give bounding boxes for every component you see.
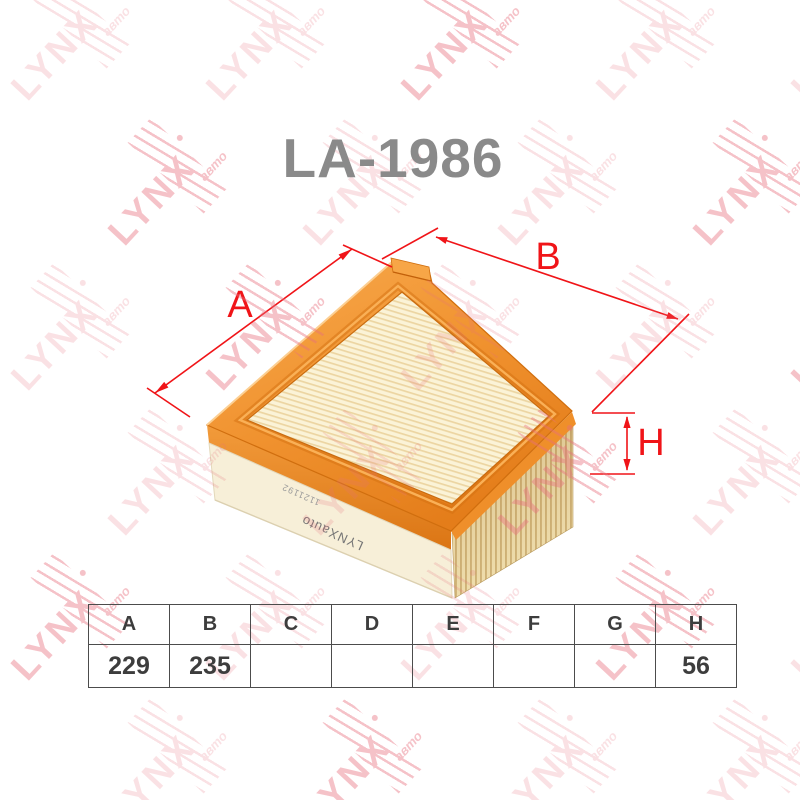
table-header-cell: D: [332, 605, 413, 645]
dim-label-b: B: [535, 236, 560, 278]
dim-label-a: A: [227, 284, 253, 326]
table-value-cell: [494, 645, 575, 688]
table-value-cell: 229: [89, 645, 170, 688]
table-header-row: ABCDEFGH: [89, 605, 737, 645]
table-value-cell: [251, 645, 332, 688]
table-header-cell: F: [494, 605, 575, 645]
table-header-cell: E: [413, 605, 494, 645]
table-value-cell: [413, 645, 494, 688]
table-value-cell: [575, 645, 656, 688]
dimensions-table: ABCDEFGH 22923556: [88, 604, 737, 688]
table-header-cell: B: [170, 605, 251, 645]
page: 1121192 LYNXauto: [0, 0, 800, 800]
dim-label-h: H: [637, 422, 664, 464]
table-value-row: 22923556: [89, 645, 737, 688]
table-value-cell: 56: [656, 645, 737, 688]
table-header-cell: H: [656, 605, 737, 645]
table-header-cell: A: [89, 605, 170, 645]
table-value-cell: [332, 645, 413, 688]
table-header-cell: C: [251, 605, 332, 645]
table-value-cell: 235: [170, 645, 251, 688]
table-header-cell: G: [575, 605, 656, 645]
part-number-title: LA-1986: [0, 126, 786, 190]
